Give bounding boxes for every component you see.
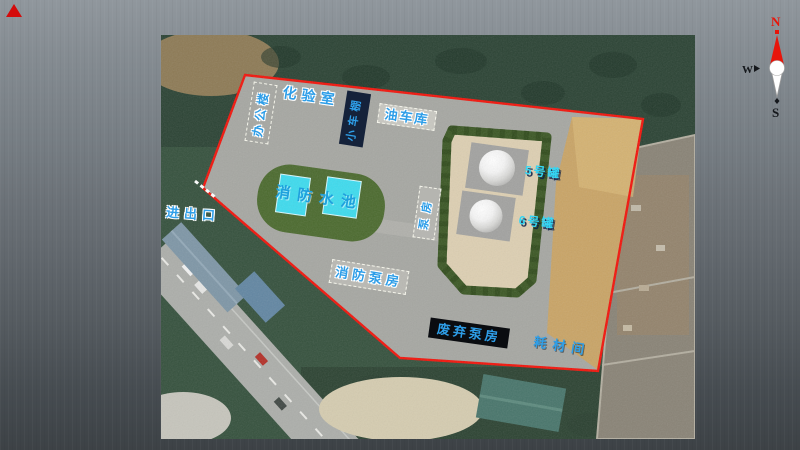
compass-west-label: W — [742, 64, 753, 76]
corner-marker-triangle — [6, 4, 22, 17]
slide-canvas: 办公楼 化验室 小车棚 油车库 消防水池 泵房 5号罐 6号罐 消防泵房 废弃泵… — [0, 0, 800, 450]
label-entrance: 进出口 — [166, 206, 221, 223]
compass-north-label: N — [771, 14, 781, 29]
compass-west-arrow — [754, 65, 760, 72]
compass-hub — [770, 61, 785, 76]
compass-rose: N W S — [735, 2, 795, 124]
compass-dot — [775, 30, 779, 34]
compass-south-dot — [775, 98, 780, 104]
compass-south-label: S — [772, 105, 779, 120]
label-tank-6: 6号罐 — [518, 214, 556, 230]
label-tank-5: 5号罐 — [524, 164, 562, 180]
